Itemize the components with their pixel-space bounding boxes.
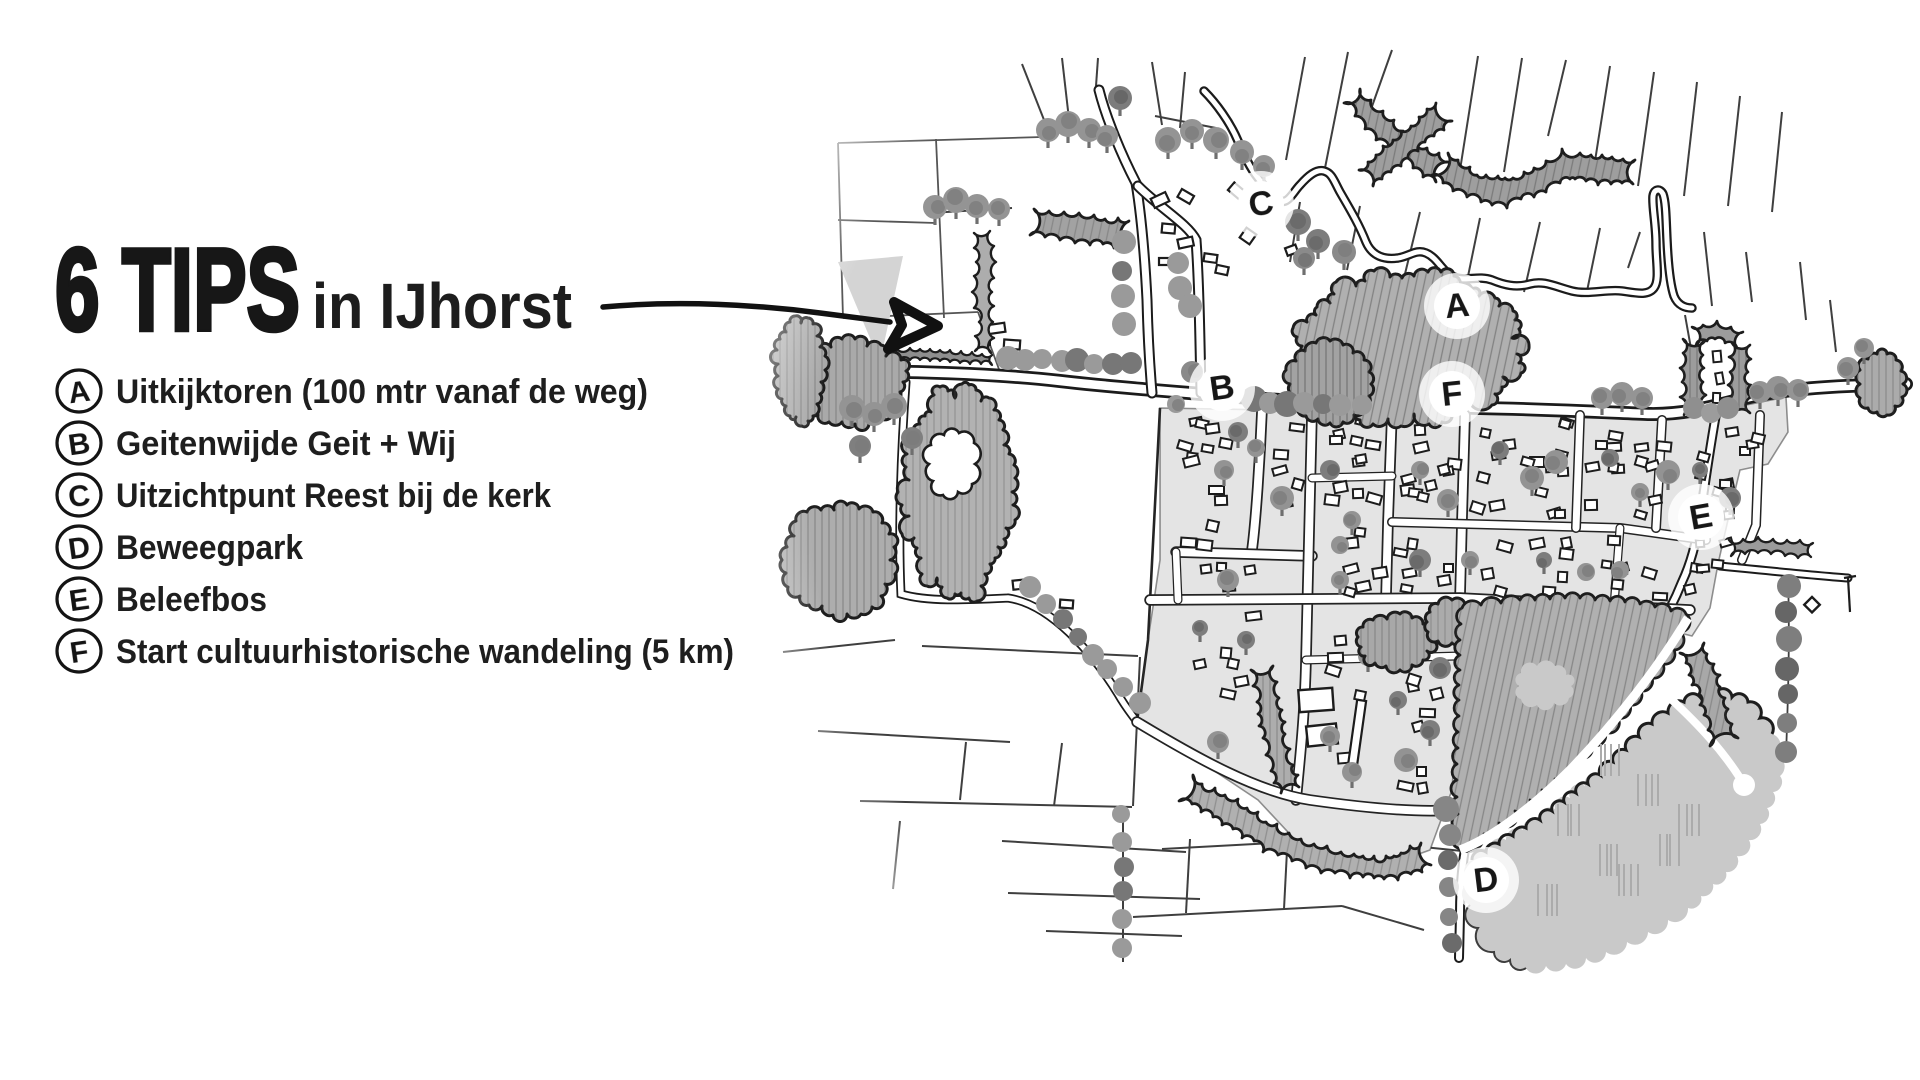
svg-text:Uitkijktoren (100 mtr vanaf de: Uitkijktoren (100 mtr vanaf de weg) xyxy=(116,373,648,411)
svg-text:C: C xyxy=(66,479,92,515)
svg-text:D: D xyxy=(1471,860,1500,901)
svg-text:Uitzichtpunt Reest bij de kerk: Uitzichtpunt Reest bij de kerk xyxy=(116,477,551,515)
svg-text:A: A xyxy=(66,375,92,411)
svg-text:Geitenwijde Geit + Wij: Geitenwijde Geit + Wij xyxy=(116,425,456,463)
svg-text:6 TIPS: 6 TIPS xyxy=(55,224,300,355)
svg-text:B: B xyxy=(66,427,92,463)
svg-text:B: B xyxy=(1207,367,1237,408)
svg-text:A: A xyxy=(1443,286,1471,326)
svg-text:Beleefbos: Beleefbos xyxy=(116,581,267,619)
svg-text:Start cultuurhistorische wande: Start cultuurhistorische wandeling (5 km… xyxy=(116,633,734,671)
svg-text:in IJhorst: in IJhorst xyxy=(312,270,572,342)
svg-text:D: D xyxy=(66,531,92,567)
svg-text:F: F xyxy=(1440,374,1465,414)
svg-text:Beweegpark: Beweegpark xyxy=(116,529,303,567)
